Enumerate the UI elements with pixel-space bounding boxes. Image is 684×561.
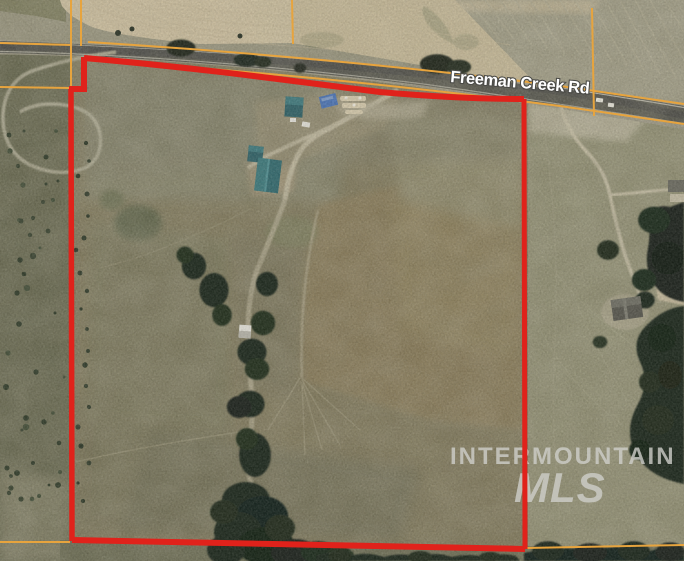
svg-text:MLS: MLS <box>514 464 606 511</box>
